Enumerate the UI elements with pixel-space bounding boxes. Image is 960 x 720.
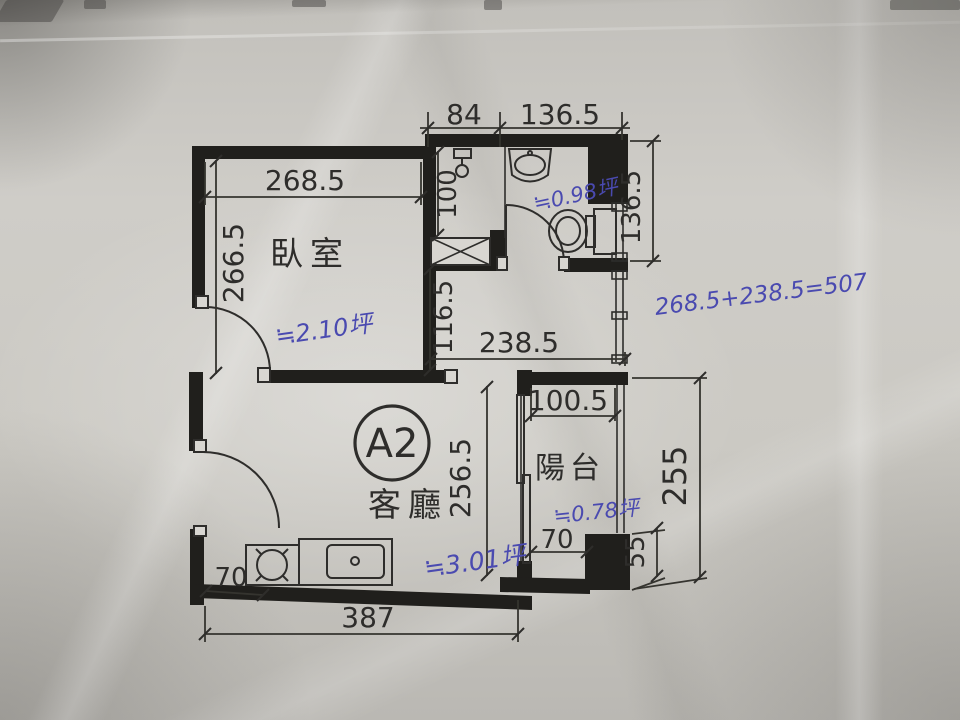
dim-bathroom-right-height: 136.5 xyxy=(617,170,647,244)
door-frame-marker xyxy=(194,526,206,536)
dim-shaft-height: 100 xyxy=(433,169,463,219)
wall-bedroom-top xyxy=(192,146,428,159)
dim-bedroom-width: 268.5 xyxy=(265,164,345,197)
kitchen-sink-drain xyxy=(351,557,359,565)
sink-bowl xyxy=(515,155,545,175)
door-frame-marker xyxy=(194,440,206,452)
dim-living-height: 256.5 xyxy=(444,438,477,518)
window-frame xyxy=(612,312,627,319)
burner-tick xyxy=(283,549,288,554)
wall-left-upper xyxy=(192,146,205,308)
door-frame-marker xyxy=(497,257,507,270)
unit-label: A2 xyxy=(366,421,419,467)
window-frame xyxy=(612,271,627,279)
dim-balcony-bottom-width: 70 xyxy=(540,525,573,555)
toilet-tank xyxy=(594,209,616,254)
burner-tick xyxy=(256,576,261,581)
floor-plan-svg: 84 136.5 268.5 266.5 100 136.5 116.5 238… xyxy=(0,0,960,720)
door-frame-marker xyxy=(196,296,208,308)
door-frame-marker xyxy=(258,368,270,382)
toilet-icon xyxy=(549,209,616,254)
dim-bathroom-top-width: 136.5 xyxy=(520,98,600,131)
burner-tick xyxy=(256,549,261,554)
handwritten-bedroom-area: ≒2.10坪 xyxy=(274,309,378,351)
kitchen-sink-icon xyxy=(299,539,392,585)
wall-balcony-bottom xyxy=(500,577,590,594)
dim-balcony-top-width: 100.5 xyxy=(528,384,608,417)
burner-tick xyxy=(283,576,288,581)
handwritten-sum-equation: 268.5+238.5=507 xyxy=(653,269,869,321)
kitchen-sink-bowl xyxy=(327,545,384,578)
stove-icon xyxy=(246,545,299,585)
door-frame-marker xyxy=(445,370,457,383)
dim-balcony-right-height: 255 xyxy=(656,445,694,506)
pipe-shaft-box xyxy=(431,238,490,265)
room-label-balcony: 陽台 xyxy=(535,451,605,486)
room-label-bedroom: 臥室 xyxy=(270,234,350,273)
tap-body xyxy=(454,149,471,158)
dim-kitchen-offset: 70 xyxy=(214,563,247,593)
dim-hallway-height: 116.5 xyxy=(429,280,459,354)
ext-line xyxy=(632,530,665,534)
sink-faucet xyxy=(528,151,532,155)
dim-shaft-top-width: 84 xyxy=(446,98,482,131)
room-label-living: 客廳 xyxy=(368,485,448,524)
dim-bedroom-height: 266.5 xyxy=(217,223,250,303)
dim-hallway-width: 238.5 xyxy=(479,326,559,359)
bedroom-door-arc xyxy=(205,307,270,372)
floor-plan-photo: 84 136.5 268.5 266.5 100 136.5 116.5 238… xyxy=(0,0,960,720)
dim-living-width: 387 xyxy=(341,601,394,634)
door-frame-marker xyxy=(559,257,569,270)
stove-burner xyxy=(257,550,287,580)
wall-bath-bottom-right xyxy=(564,258,628,272)
handwritten-living-area: ≒3.01坪 xyxy=(422,540,531,583)
ext-line xyxy=(632,578,665,590)
bathroom-sink-icon xyxy=(509,149,551,182)
toilet-bowl-inner xyxy=(556,217,580,245)
entrance-door-arc xyxy=(203,452,279,528)
handwritten-balcony-area: ≒0.78坪 xyxy=(553,495,643,528)
dim-ledge-height: 55 xyxy=(621,535,651,568)
